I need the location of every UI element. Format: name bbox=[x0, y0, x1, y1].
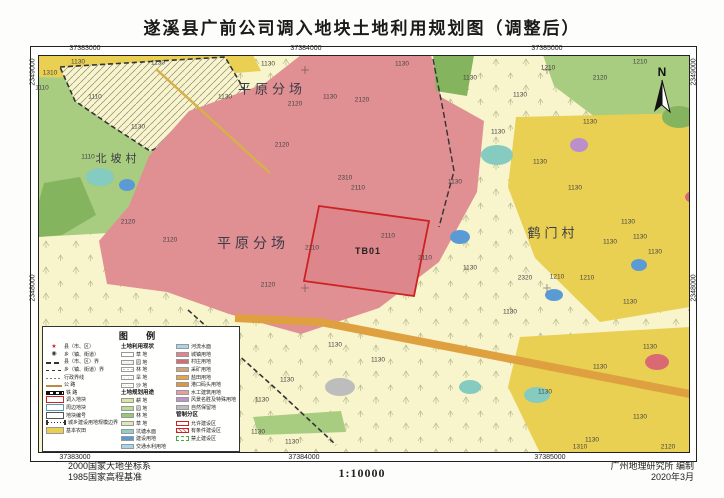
legend-item-label: 港口码头用地 bbox=[191, 381, 221, 388]
legend-item-label: 盐田用地 bbox=[191, 374, 211, 381]
legend-row: 自然保留地 bbox=[176, 404, 236, 412]
color-swatch bbox=[121, 398, 134, 403]
legend-row: 铁 路 bbox=[46, 389, 118, 397]
legend-row: 城乡建设用地规模边界 bbox=[46, 419, 118, 427]
legend-row: 允许建设区 bbox=[176, 419, 236, 427]
legend-row: 草 地 bbox=[121, 420, 173, 428]
legend-row: 乡（镇、街道）界 bbox=[46, 366, 118, 374]
zone-swatch bbox=[176, 421, 189, 426]
legend-item-label: 城镇用地 bbox=[191, 351, 211, 358]
legend-item-label: 建设用地 bbox=[136, 435, 156, 442]
legend-row: ◉乡（镇、街道） bbox=[46, 351, 118, 359]
credit-note: 广州地理研究所 编制 2020年3月 bbox=[610, 461, 694, 483]
legend-item-label: 林 地 bbox=[136, 366, 147, 373]
legend-item-label: 行政界线 bbox=[64, 374, 84, 381]
legend-item-label: 林 地 bbox=[136, 412, 147, 419]
pattern-swatch bbox=[121, 375, 134, 380]
scope-icon bbox=[46, 420, 66, 425]
legend-row: 采矿用地 bbox=[176, 366, 236, 374]
legend-item-label: 水工建筑用地 bbox=[191, 389, 221, 396]
color-swatch bbox=[121, 413, 134, 418]
legend-row: 园 地 bbox=[121, 405, 173, 413]
legend-row: 调入地块 bbox=[46, 396, 118, 404]
rail-icon bbox=[46, 391, 64, 395]
legend-row: 园 地 bbox=[121, 359, 173, 367]
legend-row: 交通水利用地 bbox=[121, 443, 173, 451]
legend-symbols-column: ★县（市、区）◉乡（镇、街道）县（市、区）界乡（镇、街道）界行政界线公 路铁 路… bbox=[46, 343, 118, 450]
legend-row: 林 地 bbox=[121, 366, 173, 374]
credit-line1: 广州地理研究所 编制 bbox=[610, 461, 694, 472]
legend-row: 县（市、区）界 bbox=[46, 358, 118, 366]
legend-row: 有条件建设区 bbox=[176, 427, 236, 435]
legend-item-label: 乡（镇、街道） bbox=[64, 351, 99, 358]
color-swatch bbox=[176, 397, 189, 402]
admin-line-icon bbox=[46, 378, 62, 379]
color-swatch bbox=[176, 375, 189, 380]
legend-row: 基本农田 bbox=[46, 427, 118, 435]
legend-item-label: 园 地 bbox=[136, 405, 147, 412]
color-swatch bbox=[176, 344, 189, 349]
pattern-swatch bbox=[121, 367, 134, 372]
legend-item-label: 交通水利用地 bbox=[136, 443, 166, 450]
legend-item-label: 风景名胜及特殊用地 bbox=[191, 396, 236, 403]
legend-item-label: 城乡建设用地规模边界 bbox=[68, 419, 118, 426]
legend-use-column: 河流水面城镇用地村庄用地采矿用地盐田用地港口码头用地水工建筑用地风景名胜及特殊用… bbox=[176, 343, 236, 450]
legend-row: 建设用地 bbox=[121, 435, 173, 443]
color-swatch bbox=[121, 444, 134, 449]
zone-swatch bbox=[176, 436, 189, 441]
pattern-swatch bbox=[121, 360, 134, 365]
legend-row: 林 地 bbox=[121, 412, 173, 420]
color-swatch bbox=[176, 382, 189, 387]
blue-rect-icon bbox=[46, 404, 64, 411]
legend-row: 耕 地 bbox=[121, 397, 173, 405]
star-icon: ★ bbox=[46, 344, 62, 350]
county-line-icon bbox=[46, 362, 62, 364]
legend-row: 村庄用地 bbox=[176, 358, 236, 366]
legend-row: ★县（市、区） bbox=[46, 343, 118, 351]
red-rect-icon bbox=[46, 396, 64, 403]
zone-swatch bbox=[176, 428, 189, 433]
color-swatch bbox=[176, 367, 189, 372]
legend-row: 风景名胜及特殊用地 bbox=[176, 396, 236, 404]
legend-item-label: 河流水面 bbox=[191, 343, 211, 350]
legend-item-label: 允许建设区 bbox=[191, 420, 216, 427]
legend-row: 旱 地 bbox=[121, 374, 173, 382]
color-swatch bbox=[121, 436, 134, 441]
legend-section-header: 土地规划用途 bbox=[121, 389, 173, 397]
legend-item-label: 草 地 bbox=[136, 351, 147, 358]
legend-item-label: 调入地块 bbox=[66, 396, 86, 403]
township-line-icon bbox=[46, 370, 62, 371]
tag-icon bbox=[46, 412, 64, 419]
legend-item-label: 周边地块 bbox=[66, 404, 86, 411]
road-icon bbox=[46, 385, 62, 387]
legend-item-label: 公 路 bbox=[64, 381, 75, 388]
legend-item-label: 草 地 bbox=[136, 420, 147, 427]
legend-item-label: 村庄用地 bbox=[191, 358, 211, 365]
legend-item-label: 耕 地 bbox=[136, 397, 147, 404]
color-swatch bbox=[121, 406, 134, 411]
legend-row: 水工建筑用地 bbox=[176, 389, 236, 397]
legend-row: 沙 地 bbox=[121, 381, 173, 389]
legend-item-label: 禁止建设区 bbox=[191, 435, 216, 442]
legend-row: 河流水面 bbox=[176, 343, 236, 351]
color-swatch bbox=[176, 405, 189, 410]
legend-row: 港口码头用地 bbox=[176, 381, 236, 389]
color-swatch bbox=[121, 429, 134, 434]
pattern-swatch bbox=[121, 383, 134, 388]
legend-item-label: 铁 路 bbox=[66, 389, 77, 396]
legend-item-label: 沙 地 bbox=[136, 382, 147, 389]
legend-item-label: 基本农田 bbox=[66, 427, 86, 434]
map-sheet: { "title": "遂溪县广前公司调入地块土地利用规划图（调整后）", "n… bbox=[0, 0, 724, 498]
legend-row: 坑塘水面 bbox=[121, 427, 173, 435]
pattern-swatch bbox=[121, 352, 134, 357]
color-swatch bbox=[121, 421, 134, 426]
legend-box[interactable]: 图 例 ★县（市、区）◉乡（镇、街道）县（市、区）界乡（镇、街道）界行政界线公 … bbox=[42, 326, 240, 452]
color-swatch bbox=[176, 352, 189, 357]
legend-title: 图 例 bbox=[46, 329, 236, 342]
legend-item-label: 有条件建设区 bbox=[191, 427, 221, 434]
legend-item-label: 乡（镇、街道）界 bbox=[64, 366, 104, 373]
legend-item-label: 县（市、区） bbox=[64, 343, 94, 350]
legend-row: 盐田用地 bbox=[176, 373, 236, 381]
legend-row: 公 路 bbox=[46, 381, 118, 389]
credit-line2: 2020年3月 bbox=[610, 472, 694, 483]
color-swatch bbox=[176, 390, 189, 395]
legend-item-label: 旱 地 bbox=[136, 374, 147, 381]
legend-item-label: 自然保留地 bbox=[191, 404, 216, 411]
legend-item-label: 坑塘水面 bbox=[136, 428, 156, 435]
yellow-icon bbox=[46, 427, 64, 434]
legend-row: 周边地块 bbox=[46, 404, 118, 412]
legend-item-label: 园 地 bbox=[136, 359, 147, 366]
legend-status-column: 土地利用现状草 地园 地林 地旱 地沙 地土地规划用途耕 地园 地林 地草 地坑… bbox=[121, 343, 173, 450]
legend-row: 城镇用地 bbox=[176, 351, 236, 359]
legend-item-label: 采矿用地 bbox=[191, 366, 211, 373]
legend-item-label: 县（市、区）界 bbox=[64, 358, 99, 365]
legend-row: 地块编号 bbox=[46, 411, 118, 419]
legend-row: 行政界线 bbox=[46, 373, 118, 381]
map-title: 遂溪县广前公司调入地块土地利用规划图（调整后） bbox=[0, 14, 724, 39]
legend-section-header: 土地利用现状 bbox=[121, 343, 173, 351]
legend-section-header: 管制分区 bbox=[176, 411, 236, 419]
legend-row: 草 地 bbox=[121, 351, 173, 359]
legend-item-label: 地块编号 bbox=[66, 412, 86, 419]
legend-row: 禁止建设区 bbox=[176, 435, 236, 443]
town-icon: ◉ bbox=[46, 351, 62, 357]
color-swatch bbox=[176, 359, 189, 364]
